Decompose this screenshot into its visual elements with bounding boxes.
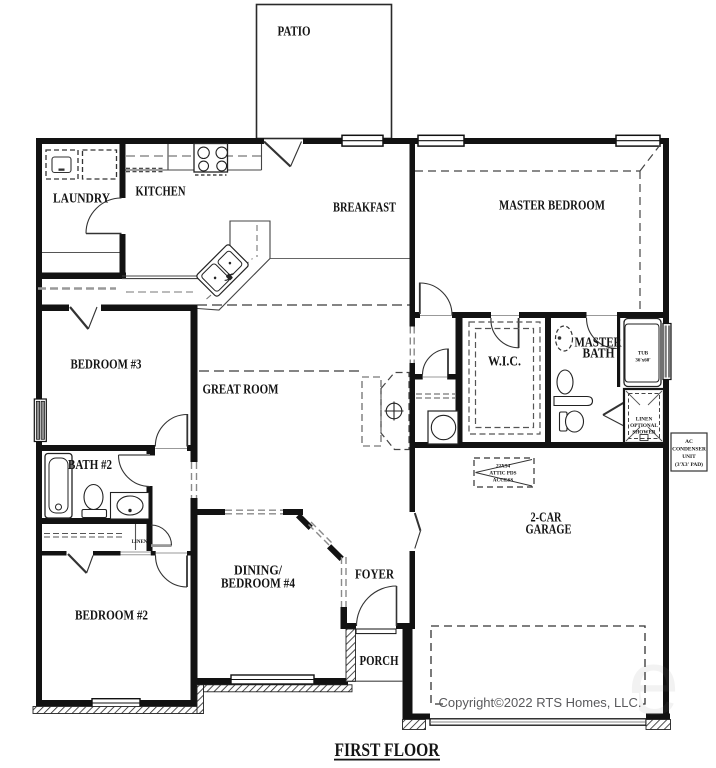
svg-text:BREAKFAST: BREAKFAST [333,201,396,216]
svg-text:LINEN: LINEN [636,417,653,423]
svg-text:BATH: BATH [583,347,615,362]
svg-text:AC: AC [685,439,693,445]
svg-text:22X54: 22X54 [496,464,511,470]
svg-text:SHOWER: SHOWER [632,430,656,436]
svg-text:LAUNDRY: LAUNDRY [53,192,110,207]
svg-text:PORCH: PORCH [360,654,399,669]
svg-text:FOYER: FOYER [355,568,395,583]
svg-text:GARAGE: GARAGE [526,522,572,537]
svg-text:ACCESS: ACCESS [493,478,514,484]
svg-text:CONDENSER: CONDENSER [672,447,706,453]
svg-text:36'x60': 36'x60' [635,359,651,364]
svg-text:LINEN: LINEN [132,540,148,545]
svg-text:FIRST FLOOR: FIRST FLOOR [335,740,440,761]
svg-text:OPTIONAL: OPTIONAL [630,423,658,429]
svg-text:(3'X3' PAD): (3'X3' PAD) [675,461,703,468]
svg-text:W.I.C.: W.I.C. [488,355,521,370]
svg-text:UNIT: UNIT [682,454,696,460]
svg-text:TUB: TUB [638,352,649,357]
svg-text:MASTER BEDROOM: MASTER BEDROOM [499,199,605,214]
svg-text:BEDROOM #2: BEDROOM #2 [75,609,148,624]
svg-text:KITCHEN: KITCHEN [136,185,186,200]
svg-text:GREAT ROOM: GREAT ROOM [203,383,279,398]
svg-text:e: e [628,632,679,734]
svg-text:BEDROOM #4: BEDROOM #4 [221,577,295,592]
svg-text:Copyright©2022 RTS Homes, LLC.: Copyright©2022 RTS Homes, LLC. [439,695,642,710]
svg-text:BEDROOM #3: BEDROOM #3 [71,358,142,373]
svg-text:PATIO: PATIO [278,25,311,40]
svg-text:ATTIC PDS: ATTIC PDS [489,471,516,477]
svg-text:BATH #2: BATH #2 [68,458,112,473]
